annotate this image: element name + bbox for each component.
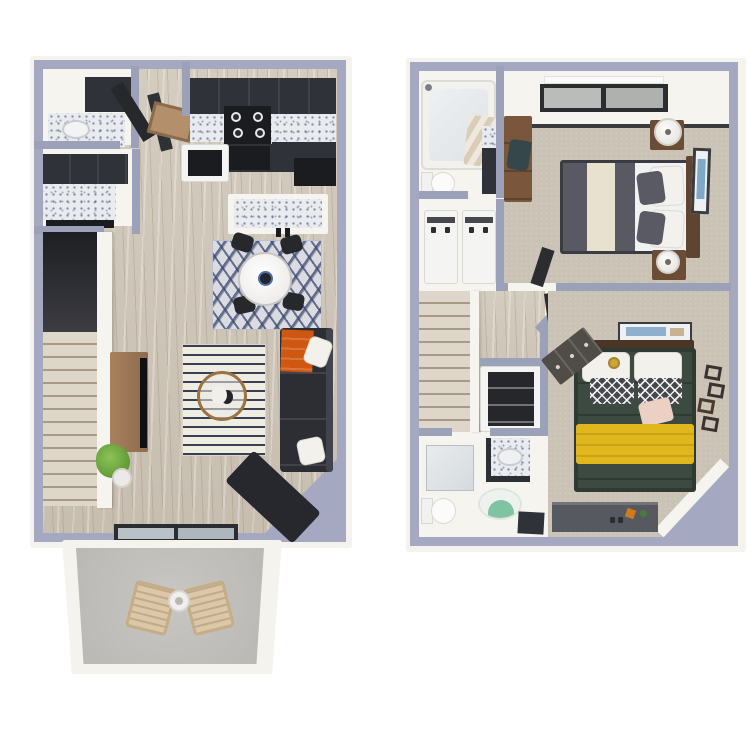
dryer-knob (483, 227, 488, 233)
bath2-cabinet (517, 511, 544, 534)
wall-hall-bedroom2 (540, 322, 548, 435)
dresser-knob (555, 364, 561, 370)
second-floor (0, 0, 750, 750)
washer-knob (445, 227, 450, 233)
bath-rug-pattern (488, 500, 514, 520)
wall-bedroom1-bottom (556, 283, 731, 291)
gold-dish (608, 357, 620, 369)
bed1-pillow-gray (636, 210, 666, 245)
washer-control-panel (427, 217, 455, 223)
wall-bath1-bottom (419, 191, 468, 199)
console-decor-orange (625, 508, 637, 520)
toilet-bowl (431, 498, 456, 524)
art-content (696, 159, 705, 199)
wall-bath2-top-left (419, 428, 452, 436)
wall-bath1-right (496, 66, 504, 198)
bedroom1-baseboard (504, 124, 729, 128)
glass-shower (423, 442, 477, 494)
console-item (618, 517, 623, 523)
dresser-knob (583, 342, 589, 348)
floorplan-canvas (0, 0, 750, 750)
decor-square (704, 364, 722, 381)
framed-wall-art (691, 148, 711, 215)
window-pane (544, 88, 603, 108)
art-content (670, 328, 684, 336)
desk-chair (506, 139, 532, 172)
decor-square (701, 416, 719, 433)
decor-square (697, 398, 715, 415)
wall-bath2-top-right (490, 428, 548, 436)
bed1-pillow-gray (636, 170, 666, 205)
wall-bedroom1-bottom-left (496, 283, 508, 291)
linen-closet-interior (488, 372, 534, 426)
tub-faucet-icon (425, 84, 432, 91)
bedroom2-console (552, 502, 658, 532)
bedroom1-window (540, 84, 668, 112)
table-lamp (656, 250, 680, 274)
dryer-knob (469, 227, 474, 233)
staircase-down (419, 291, 470, 432)
washer (424, 210, 458, 284)
bed2-art-above-headboard (618, 322, 692, 342)
bath-rug (478, 488, 522, 520)
yellow-throw-blanket (576, 424, 694, 464)
washer-knob (431, 227, 436, 233)
dryer-control-panel (465, 217, 493, 223)
bed2-pillow-trellis (590, 378, 634, 404)
console-item (610, 517, 615, 523)
console-decor-green (640, 510, 647, 517)
dresser-knob (569, 353, 575, 359)
wall-closet-top (480, 358, 542, 366)
stair-railing-wall-2 (470, 291, 479, 432)
decor-square (707, 382, 725, 399)
window-valance (544, 76, 664, 84)
bath2-sink (497, 448, 523, 466)
art-content (626, 327, 666, 336)
wall-laundry-right (496, 199, 504, 290)
table-lamp (654, 118, 682, 146)
dryer (462, 210, 496, 284)
window-pane (606, 88, 663, 108)
